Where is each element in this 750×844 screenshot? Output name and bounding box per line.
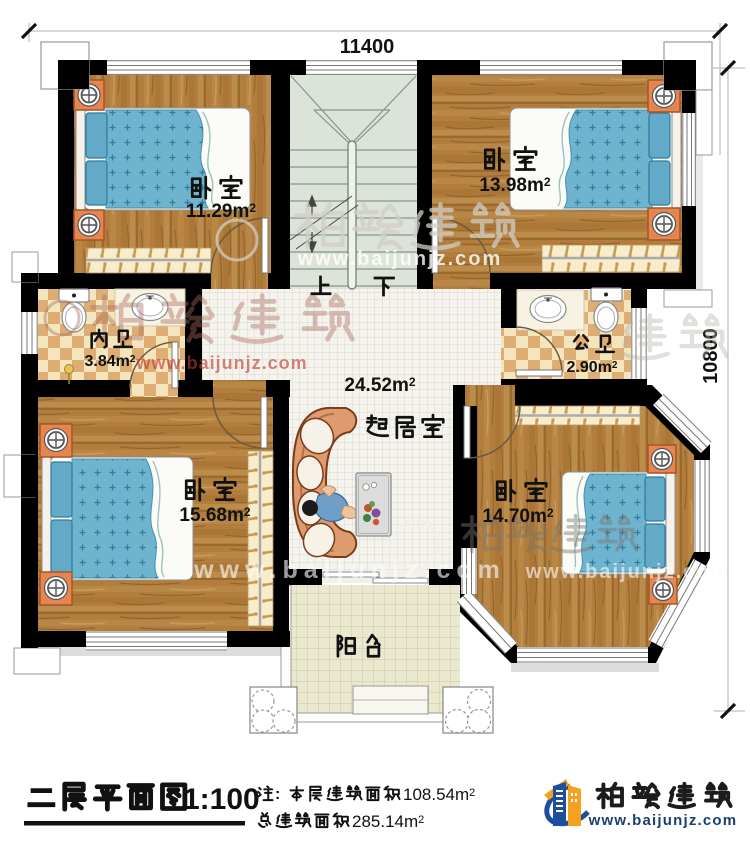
svg-text:1:100: 1:100 [183, 783, 260, 816]
svg-text:www.baijunjz.com: www.baijunjz.com [297, 248, 503, 270]
svg-text:285.14m2: 285.14m2 [352, 812, 424, 831]
svg-text:www.baijunjz.com: www.baijunjz.com [525, 561, 731, 583]
svg-text:www.baijunjz.com: www.baijunjz.com [135, 353, 307, 373]
svg-text:13.98m2: 13.98m2 [479, 175, 550, 196]
svg-text::: : [275, 786, 280, 803]
svg-text:11.29m2: 11.29m2 [186, 201, 256, 222]
svg-text:14.70m2: 14.70m2 [482, 506, 553, 527]
svg-text:11400: 11400 [340, 36, 395, 58]
svg-text:www.baijunjz.com: www.baijunjz.com [193, 556, 506, 584]
svg-text:15.68m2: 15.68m2 [179, 505, 250, 526]
svg-text:24.52m2: 24.52m2 [344, 375, 415, 396]
svg-text:3.84m2: 3.84m2 [85, 353, 136, 370]
svg-text:www.baijunjz.com: www.baijunjz.com [588, 812, 738, 829]
svg-text:2.90m2: 2.90m2 [567, 359, 618, 376]
svg-text:108.54m2: 108.54m2 [403, 785, 475, 804]
